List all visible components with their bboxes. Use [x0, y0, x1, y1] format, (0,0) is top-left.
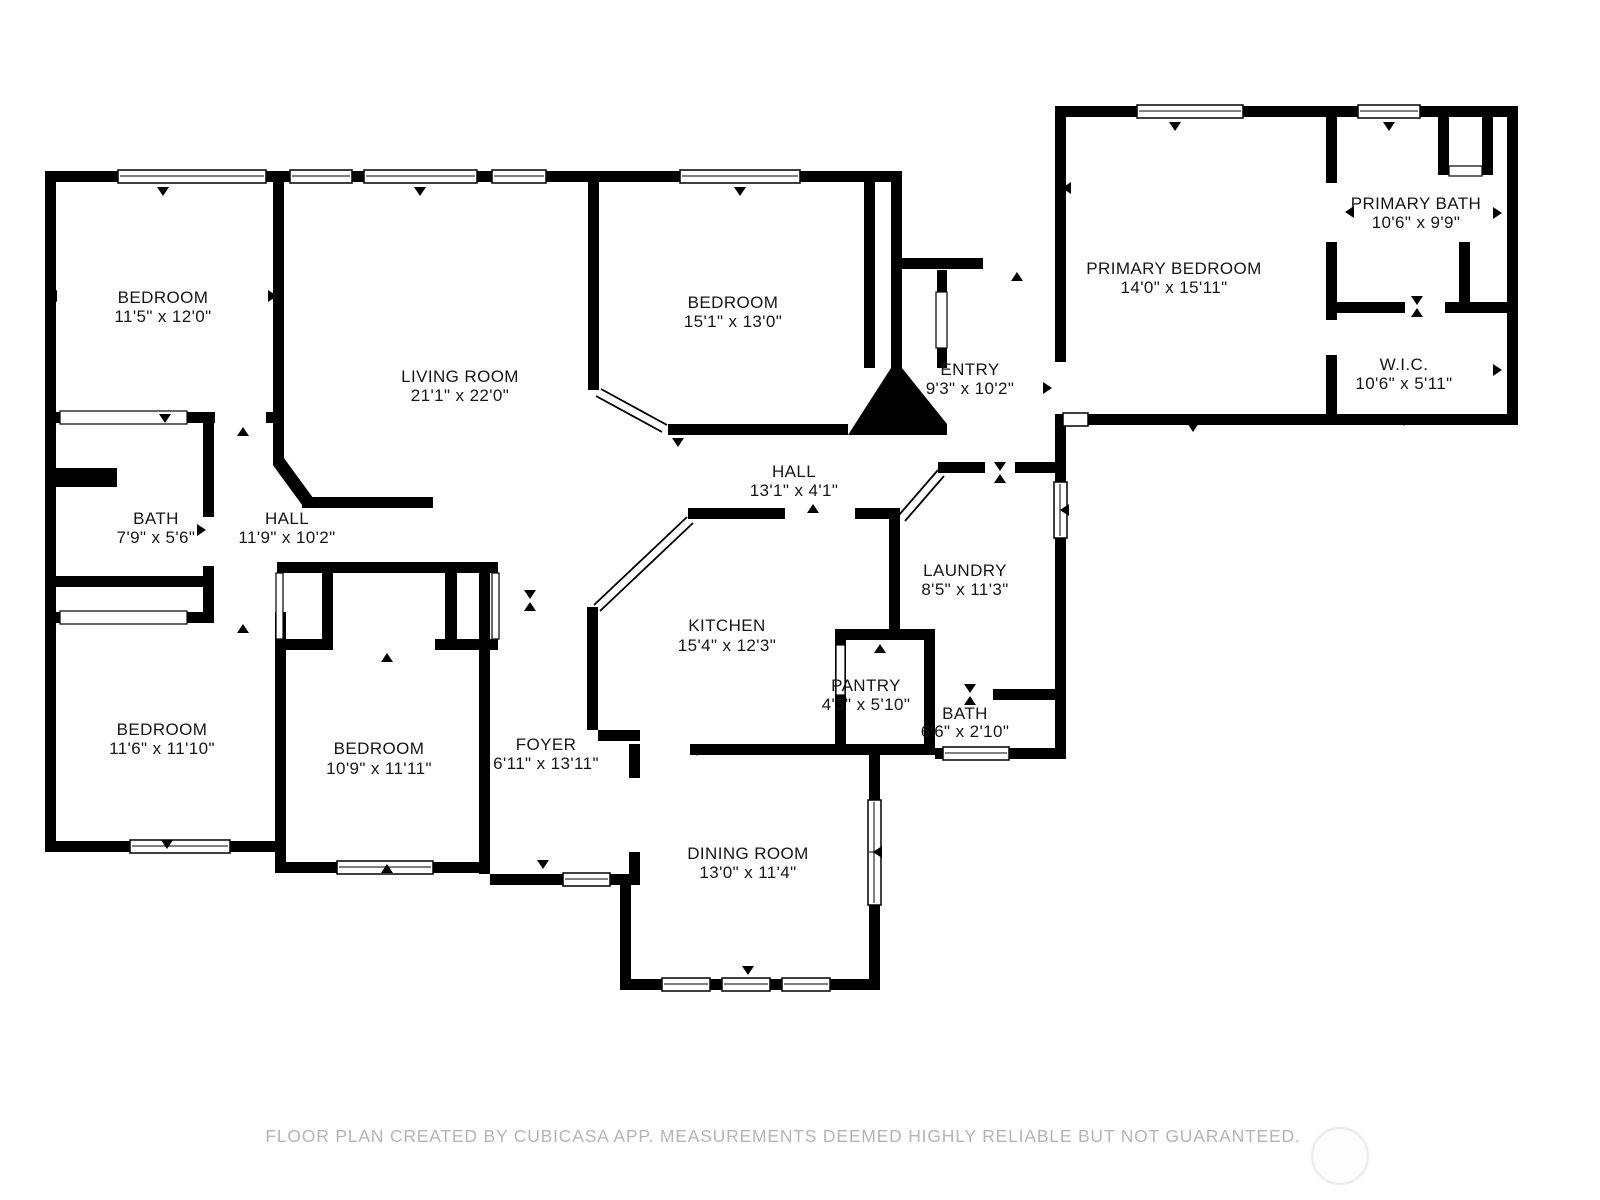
room-dims-bedroom-3: 11'6" x 11'10"	[109, 739, 215, 758]
room-labels: BEDROOM 11'5" x 12'0" LIVING ROOM 21'1" …	[109, 194, 1481, 882]
room-label-primary-bath: PRIMARY BATH	[1351, 194, 1481, 213]
room-dims-laundry: 8'5" x 11'3"	[921, 580, 1008, 599]
room-label-hall-left: HALL	[265, 509, 309, 528]
diagonal-walls	[278, 368, 947, 611]
room-label-hall-upper: HALL	[772, 462, 816, 481]
room-dims-primary-bedroom: 14'0" x 15'11"	[1120, 278, 1227, 297]
room-dims-hall-upper: 13'1" x 4'1"	[750, 481, 839, 500]
room-dims-primary-bath: 10'6" x 9'9"	[1372, 213, 1461, 232]
room-dims-bath-small: 6'6" x 2'10"	[921, 722, 1010, 741]
room-dims-entry: 9'3" x 10'2"	[926, 379, 1015, 398]
cubicasa-watermark-logo	[1312, 1128, 1368, 1184]
room-label-kitchen: KITCHEN	[688, 616, 765, 635]
room-dims-wic: 10'6" x 5'11"	[1355, 374, 1452, 393]
room-dims-bedroom-4: 10'9" x 11'11"	[326, 759, 432, 778]
room-dims-pantry: 4'3" x 5'10"	[822, 695, 911, 714]
floor-plan-page: BEDROOM 11'5" x 12'0" LIVING ROOM 21'1" …	[0, 0, 1600, 1200]
room-label-foyer: FOYER	[516, 735, 577, 754]
room-label-wic: W.I.C.	[1380, 355, 1429, 374]
room-label-laundry: LAUNDRY	[923, 561, 1007, 580]
room-dims-hall-left: 11'9" x 10'2"	[238, 528, 335, 547]
room-dims-bedroom-1: 11'5" x 12'0"	[114, 307, 211, 326]
room-dims-dining-room: 13'0" x 11'4"	[699, 863, 796, 882]
room-label-bath-left: BATH	[133, 509, 179, 528]
footer-disclaimer: FLOOR PLAN CREATED BY CUBICASA APP. MEAS…	[265, 1126, 1300, 1146]
room-dims-bath-left: 7'9" x 5'6"	[117, 528, 196, 547]
room-dims-bedroom-2: 15'1" x 13'0"	[684, 312, 782, 331]
room-dims-kitchen: 15'4" x 12'3"	[678, 636, 776, 655]
room-dims-living-room: 21'1" x 22'0"	[411, 386, 509, 405]
room-label-bedroom-2: BEDROOM	[688, 293, 779, 312]
room-label-entry: ENTRY	[940, 360, 999, 379]
room-label-bath-small: BATH	[942, 704, 988, 723]
room-label-bedroom-1: BEDROOM	[118, 288, 209, 307]
room-label-pantry: PANTRY	[831, 676, 901, 695]
room-dims-foyer: 6'11" x 13'11"	[493, 754, 599, 773]
room-label-bedroom-3: BEDROOM	[117, 720, 208, 739]
room-label-dining-room: DINING ROOM	[687, 844, 809, 863]
room-label-living-room: LIVING ROOM	[401, 367, 519, 386]
room-label-bedroom-4: BEDROOM	[334, 739, 425, 758]
room-label-primary-bedroom: PRIMARY BEDROOM	[1086, 259, 1261, 278]
floor-plan-canvas: BEDROOM 11'5" x 12'0" LIVING ROOM 21'1" …	[0, 0, 1600, 1200]
